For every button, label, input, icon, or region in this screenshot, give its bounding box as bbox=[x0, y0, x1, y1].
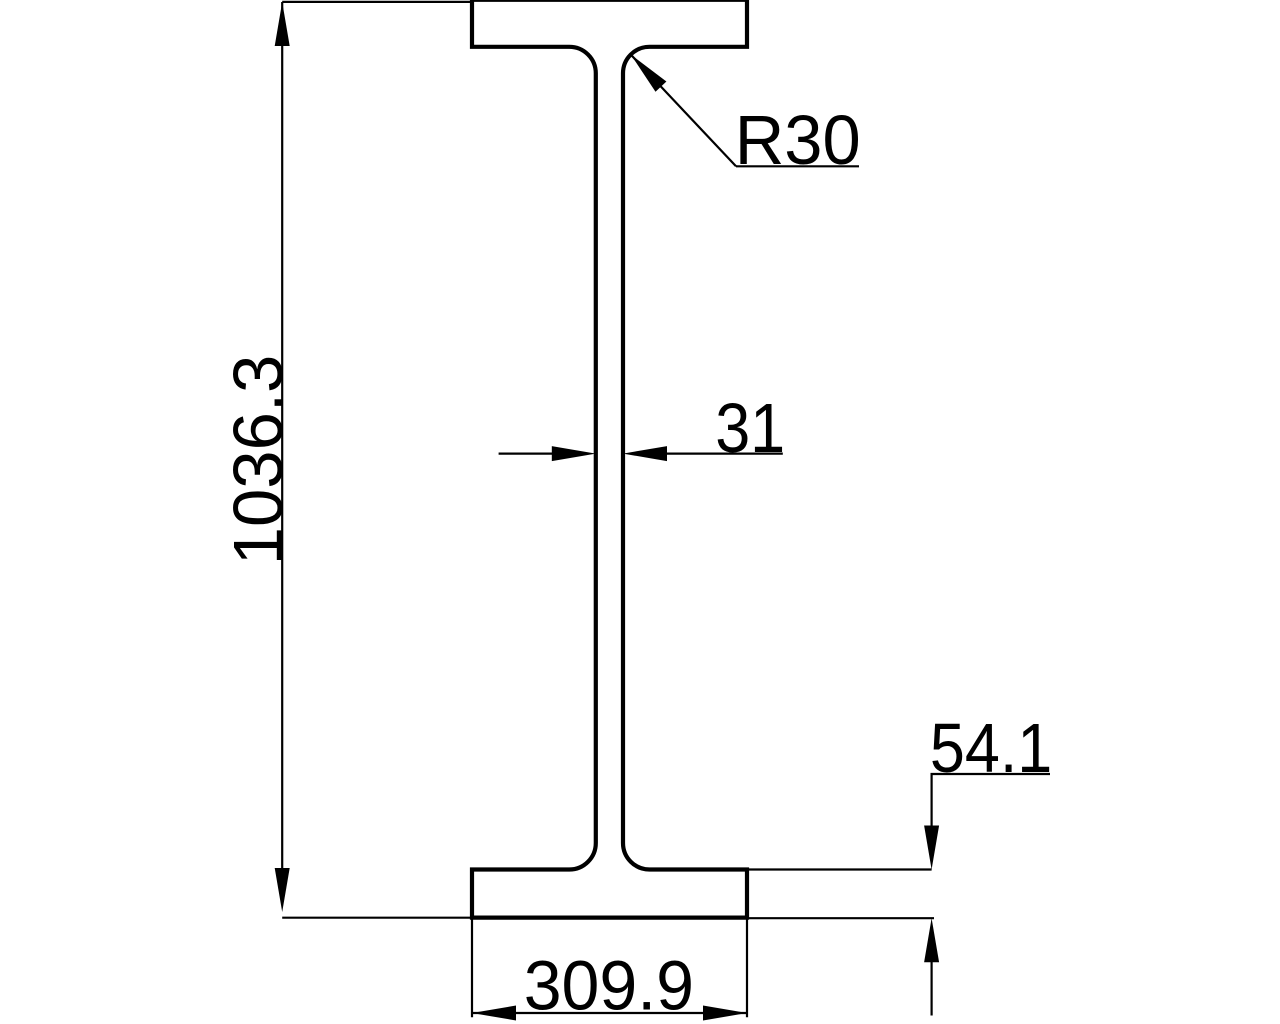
svg-text:54.1: 54.1 bbox=[930, 709, 1052, 787]
svg-text:R30: R30 bbox=[735, 101, 861, 179]
svg-text:31: 31 bbox=[715, 389, 785, 467]
svg-text:309.9: 309.9 bbox=[524, 947, 694, 1024]
svg-text:1036.3: 1036.3 bbox=[219, 355, 297, 566]
